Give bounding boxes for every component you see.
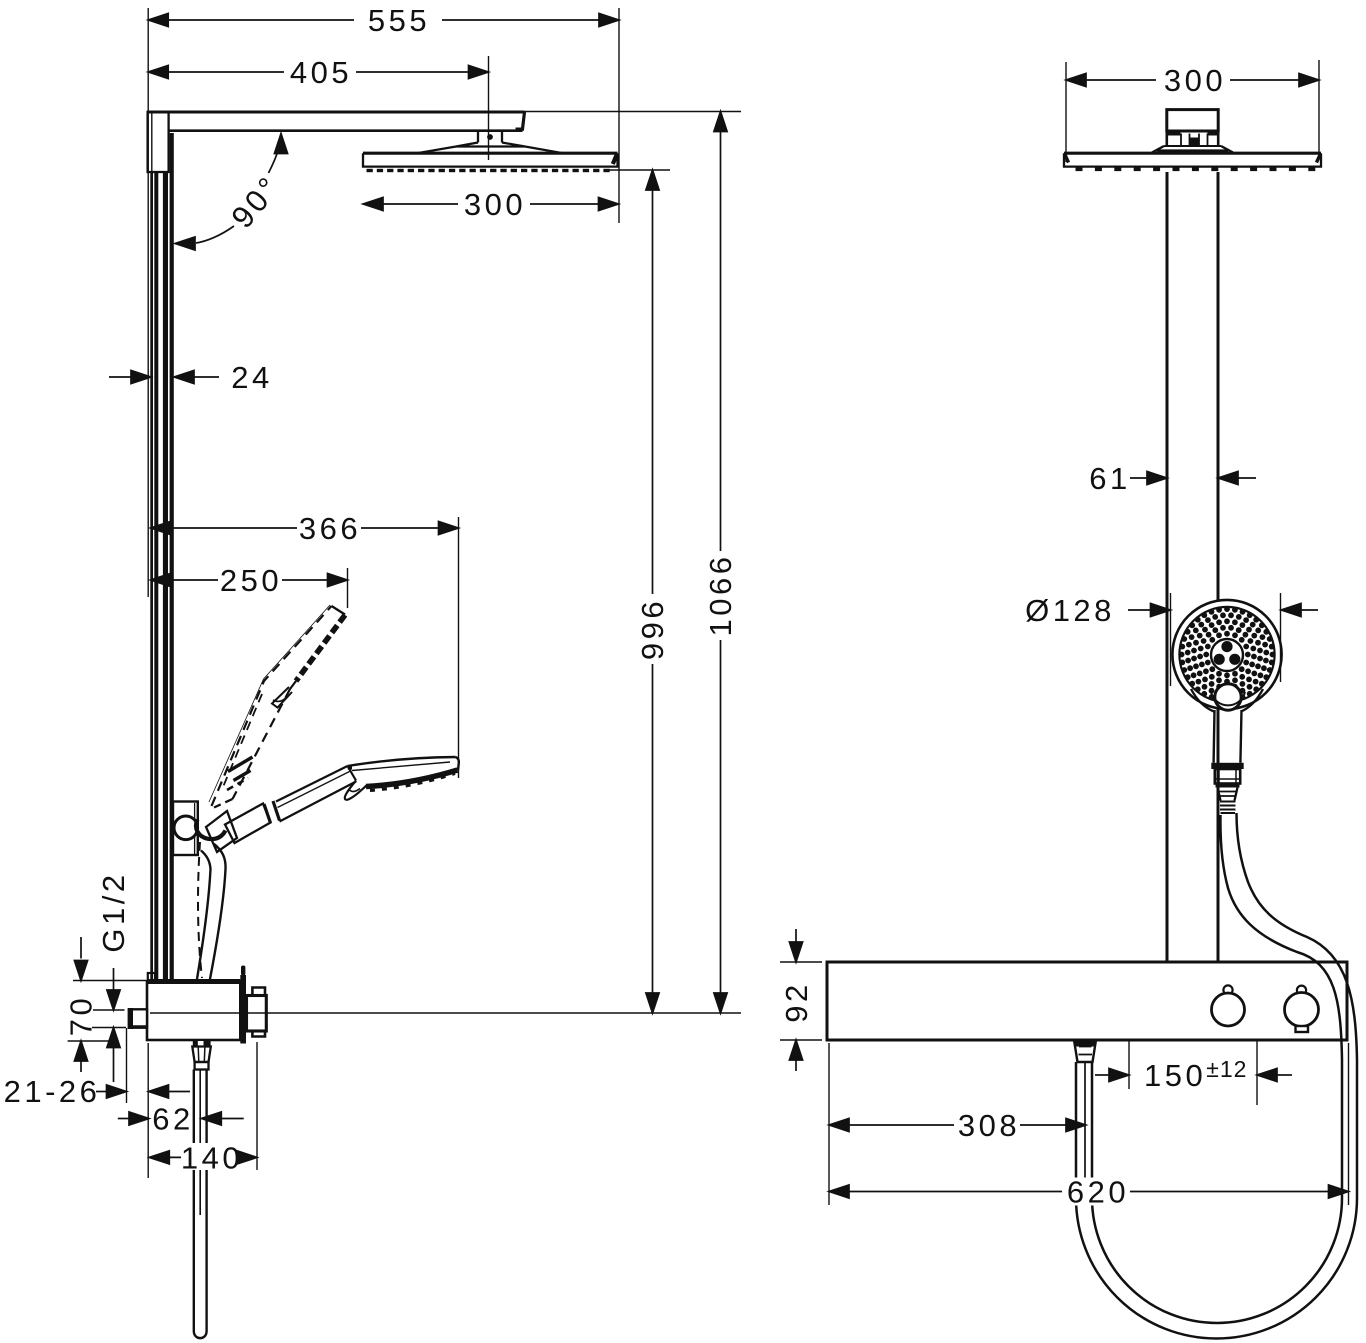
svg-text:308: 308 [958,1108,1020,1143]
svg-text:140: 140 [181,1140,243,1175]
svg-text:Ø128: Ø128 [1025,593,1115,628]
svg-text:555: 555 [368,3,430,38]
svg-text:92: 92 [779,981,814,1022]
svg-text:405: 405 [290,55,352,90]
svg-text:24: 24 [231,360,272,395]
svg-text:G1/2: G1/2 [96,871,131,952]
svg-text:21-26: 21-26 [4,1074,101,1109]
svg-text:300: 300 [1164,63,1226,98]
svg-text:250: 250 [220,563,282,598]
svg-text:70: 70 [64,995,99,1036]
svg-text:620: 620 [1067,1175,1129,1210]
svg-text:996: 996 [635,598,670,660]
svg-text:366: 366 [299,511,361,546]
svg-text:62: 62 [152,1102,193,1137]
svg-text:1066: 1066 [703,554,738,637]
svg-text:61: 61 [1089,461,1130,496]
svg-text:300: 300 [464,187,526,222]
